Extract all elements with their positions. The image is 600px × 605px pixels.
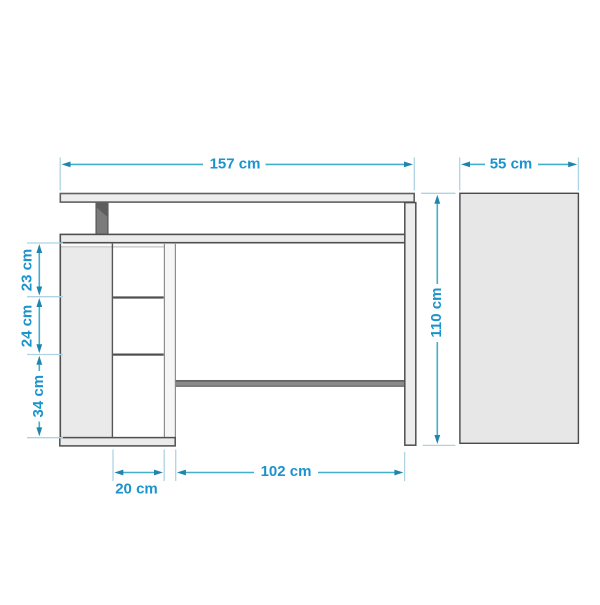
svg-text:23 cm: 23 cm [19, 249, 36, 292]
svg-text:20 cm: 20 cm [115, 481, 158, 498]
svg-text:110 cm: 110 cm [428, 288, 445, 338]
svg-text:55 cm: 55 cm [490, 155, 533, 172]
svg-text:24 cm: 24 cm [19, 305, 36, 348]
svg-text:102 cm: 102 cm [261, 463, 312, 480]
svg-text:157 cm: 157 cm [210, 155, 261, 172]
svg-text:34 cm: 34 cm [30, 375, 47, 418]
